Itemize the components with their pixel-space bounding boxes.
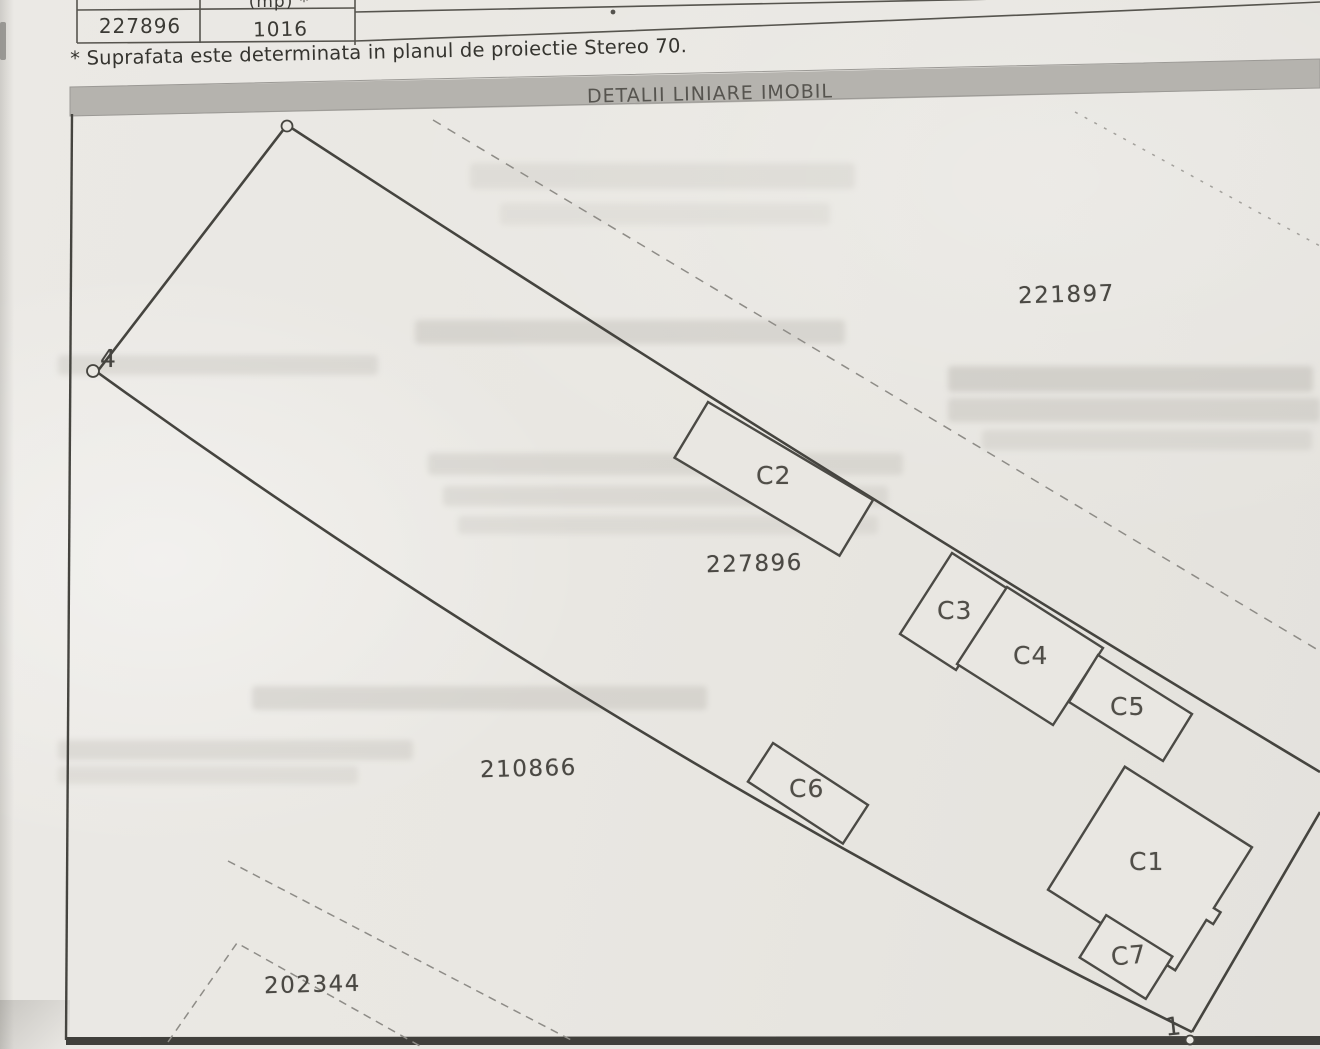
survey-point-markers	[87, 121, 1195, 1045]
building-label-c5: C5	[1110, 692, 1145, 721]
buildings	[675, 402, 1253, 999]
building-label-c4: C4	[1013, 641, 1048, 670]
building-label-c7: C7	[1110, 940, 1148, 972]
building-label-c6: C6	[789, 774, 824, 803]
parcel-label-210866: 210866	[480, 755, 577, 784]
point-label-4: 4	[100, 344, 116, 373]
ink-speck	[611, 10, 616, 15]
parcel-label-227896: 227896	[706, 550, 803, 579]
scanned-cadastral-page: (mp) * 227896 1016 * Suprafata este dete…	[0, 0, 1320, 1049]
parcel-label-202344: 202344	[264, 971, 361, 1000]
building-label-c3: C3	[937, 596, 972, 625]
table-cell-cadastral-number: 227896	[85, 14, 195, 38]
plan-left-border	[66, 114, 72, 1040]
plan-bottom-border	[66, 1036, 1320, 1045]
point-label-1: 1	[1164, 1011, 1183, 1042]
table-cell-surface: 1016	[228, 16, 333, 42]
plan-drawing	[0, 0, 1320, 1049]
building-label-c2: C2	[756, 461, 791, 490]
table-header-fragment: (mp) *	[214, 0, 344, 12]
parcel-label-221897: 221897	[1018, 281, 1115, 310]
building-label-c1: C1	[1129, 847, 1164, 876]
